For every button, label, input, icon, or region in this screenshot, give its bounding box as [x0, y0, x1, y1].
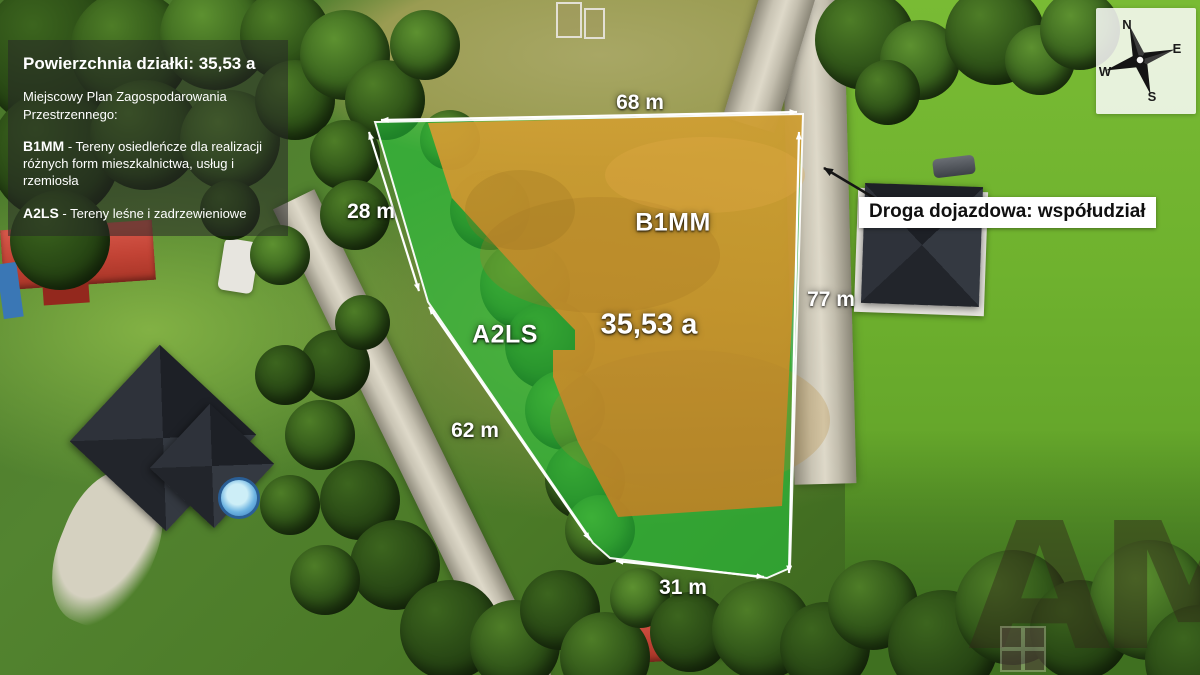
info-zone-a2ls-code: A2LS	[23, 205, 59, 221]
field-texture	[465, 170, 575, 250]
compass-w: W	[1099, 64, 1112, 79]
info-zone-b1mm: B1MM - Tereny osiedleńcze dla realizacji…	[23, 137, 273, 190]
parcel-area-label: 35,53 a	[601, 309, 698, 342]
zone-forest-label: A2LS	[472, 321, 538, 350]
compass-n: N	[1122, 17, 1131, 32]
measurement-bottom-label: 31 m	[659, 576, 707, 600]
info-panel-intro: Miejscowy Plan Zagospodarowania Przestrz…	[23, 88, 273, 122]
info-panel-title: Powierzchnia działki: 35,53 a	[23, 53, 273, 75]
measurement-top-label: 68 m	[616, 91, 664, 115]
compass-rose: N E W S	[1096, 8, 1196, 114]
zone-residential-label: B1MM	[635, 209, 711, 238]
info-zone-a2ls-desc: - Tereny leśne i zadrzewieniowe	[59, 206, 247, 221]
measurement-left-upper-label: 28 m	[347, 200, 395, 224]
measurement-left-lower-label: 62 m	[451, 419, 499, 443]
measurement-right-label: 77 m	[807, 288, 855, 312]
access-road-label: Droga dojazdowa: współudział	[859, 197, 1156, 228]
compass-star	[1096, 15, 1185, 105]
field-texture	[550, 350, 830, 490]
compass-s: S	[1148, 89, 1157, 104]
compass-e: E	[1173, 41, 1182, 56]
compass: N E W S	[1096, 8, 1196, 114]
field-texture	[605, 137, 805, 213]
info-panel: Powierzchnia działki: 35,53 a Miejscowy …	[8, 40, 288, 236]
info-zone-a2ls: A2LS - Tereny leśne i zadrzewieniowe	[23, 204, 273, 222]
info-zone-b1mm-code: B1MM	[23, 138, 64, 154]
annotated-aerial-view: 68 m 28 m 62 m 77 m 31 m B1MM A2LS 35,53…	[0, 0, 1200, 675]
